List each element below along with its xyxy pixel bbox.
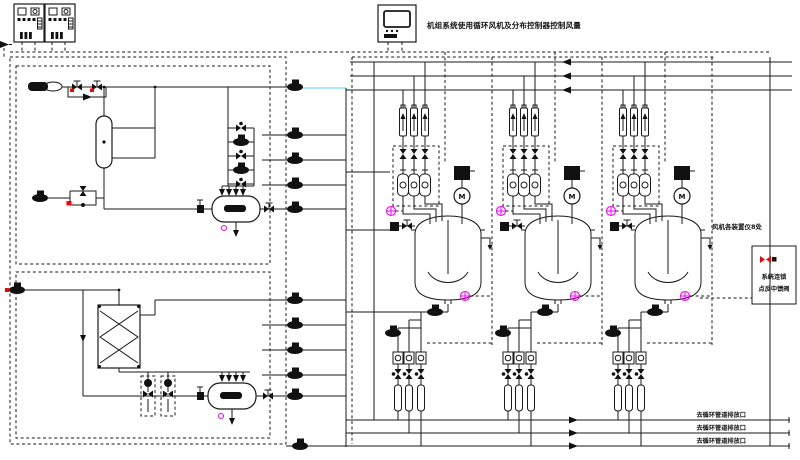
circulation-pump-loop — [32, 186, 104, 207]
valve-manifold-column — [219, 87, 254, 196]
buffer-tank-lower — [197, 372, 287, 425]
transfer-pump-column — [262, 80, 346, 214]
upper-subsystem-boundary — [16, 66, 270, 264]
plc-controller — [378, 5, 416, 42]
control-cabinet-2 — [45, 4, 75, 42]
pid-diagram-canvas: M — [0, 0, 800, 460]
outlet-label-1: 去循环管道排放口 — [697, 411, 747, 419]
interlock-line1: 系统连锁 — [762, 273, 788, 281]
pump-icon — [292, 439, 308, 451]
reactor-train-3 — [605, 52, 713, 446]
interlock-box: 系统连锁 点反中馈阀 — [752, 246, 796, 304]
drain-valves — [141, 372, 175, 416]
right-note: 风机各装置仪8处 — [712, 222, 763, 231]
blower-assembly — [28, 82, 70, 91]
control-cabinet-1 — [14, 4, 44, 42]
interlock-valve-icon — [760, 256, 771, 263]
process-flow-diagram: M — [0, 0, 800, 460]
supply-headers — [303, 59, 792, 94]
signal-bus — [4, 42, 770, 444]
feed-arrow-icon — [0, 41, 14, 48]
interlock-line2: 点反中馈阀 — [759, 285, 790, 293]
blower-discharge-valves — [68, 81, 287, 101]
heat-exchanger — [98, 290, 287, 372]
reactor-train-1 — [385, 52, 493, 446]
train1-tie-ins — [346, 172, 421, 312]
top-caption: 机组系统使用循环风机及分布控制器控制风量 — [427, 20, 581, 30]
outlet-label-3: 去循环管道排放口 — [697, 437, 747, 445]
outlet-label-2: 去循环管道排放口 — [697, 424, 747, 432]
buffer-tank-upper — [104, 196, 287, 237]
separator-column — [96, 86, 156, 209]
reactor-train-2 — [495, 52, 603, 446]
transfer-pump-column-lower — [262, 293, 346, 401]
